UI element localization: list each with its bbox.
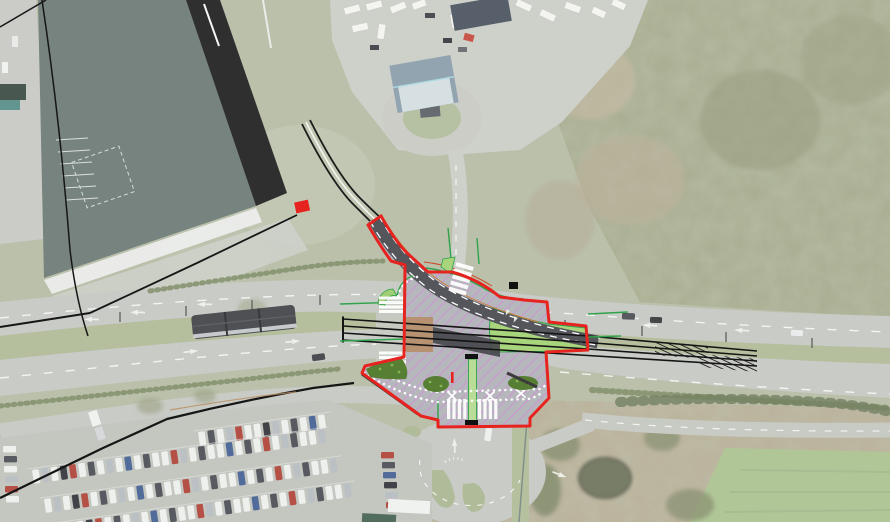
track-crossing-slab (405, 317, 433, 352)
central-refuge-strip (469, 359, 477, 421)
site-plan-canvas[interactable] (0, 0, 890, 522)
red-boundary-tick (451, 372, 454, 383)
